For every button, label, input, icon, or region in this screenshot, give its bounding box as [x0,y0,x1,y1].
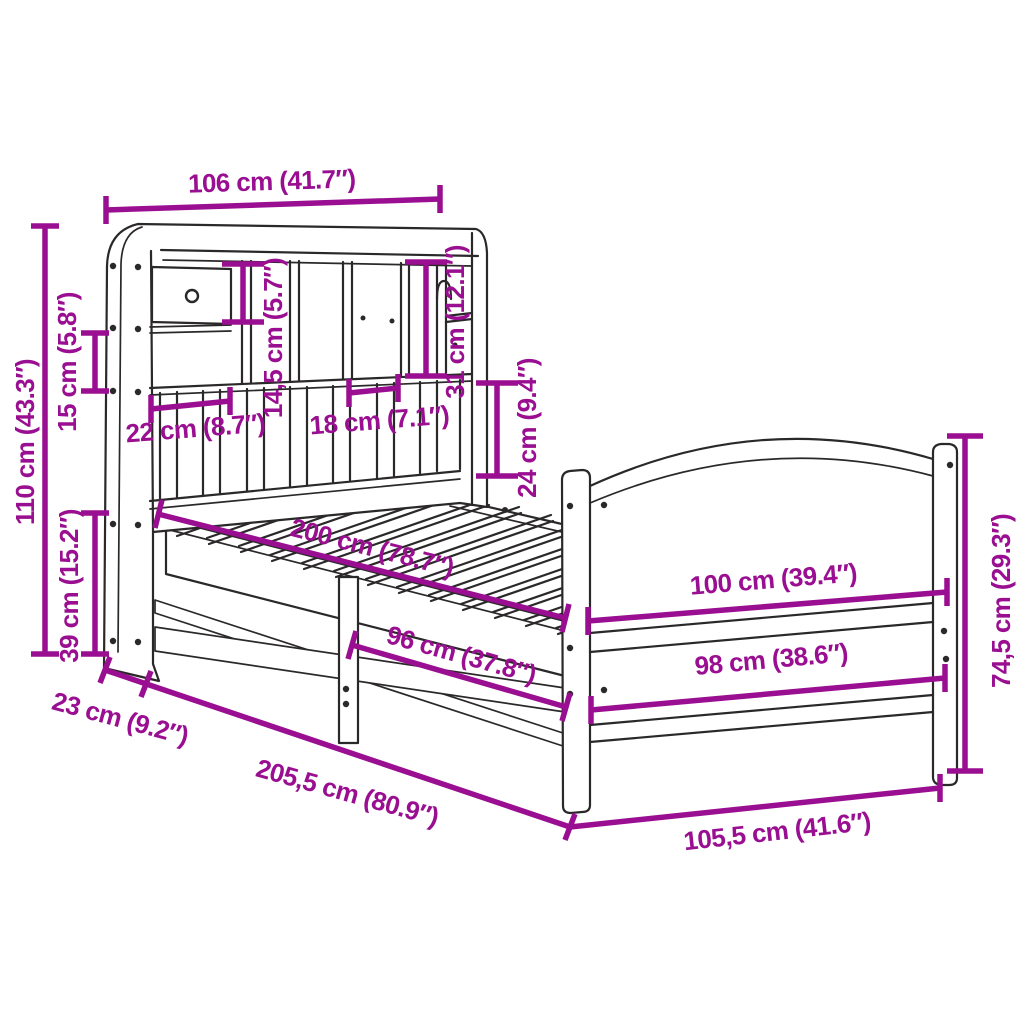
bed-dimension-diagram: 106 cm (41.7″) 110 cm (43.3″) 15 cm (5.8… [0,0,1024,1024]
dimension-label-total-length: 205,5 cm (80.9″) [253,753,442,832]
dimension-side-shelf-opening-height: 15 cm (5.8″) [52,292,109,432]
middle-leg [339,577,358,743]
footboard-drawing [562,439,957,813]
dimension-under-bed-clearance: 39 cm (15.2″) [54,509,109,663]
dimension-label-tall-compartment-height: 31 cm (12.1″) [440,245,470,399]
diagram-canvas: 106 cm (41.7″) 110 cm (43.3″) 15 cm (5.8… [0,0,1024,1024]
dimension-headboard-top-width: 106 cm (41.7″) [106,163,440,224]
dimension-label-headboard-top-width: 106 cm (41.7″) [188,163,356,198]
dimension-label-under-bed-clearance: 39 cm (15.2″) [54,509,84,663]
dimension-label-side-shelf-opening-height: 15 cm (5.8″) [52,292,82,432]
dimension-label-drawer-compartment-height: 14,5 cm (5.7″) [258,258,288,418]
dimension-label-headboard-depth: 23 cm (9.2″) [49,686,192,751]
dimension-headboard-height: 110 cm (43.3″) [10,226,59,654]
dimension-label-footboard-height: 74,5 cm (29.3″) [986,514,1016,688]
dimension-label-headboard-height: 110 cm (43.3″) [10,359,40,525]
dimension-label-lower-panel-height: 24 cm (9.4″) [512,358,542,498]
dimension-total-width: 105,5 cm (41.6″) [570,774,940,856]
